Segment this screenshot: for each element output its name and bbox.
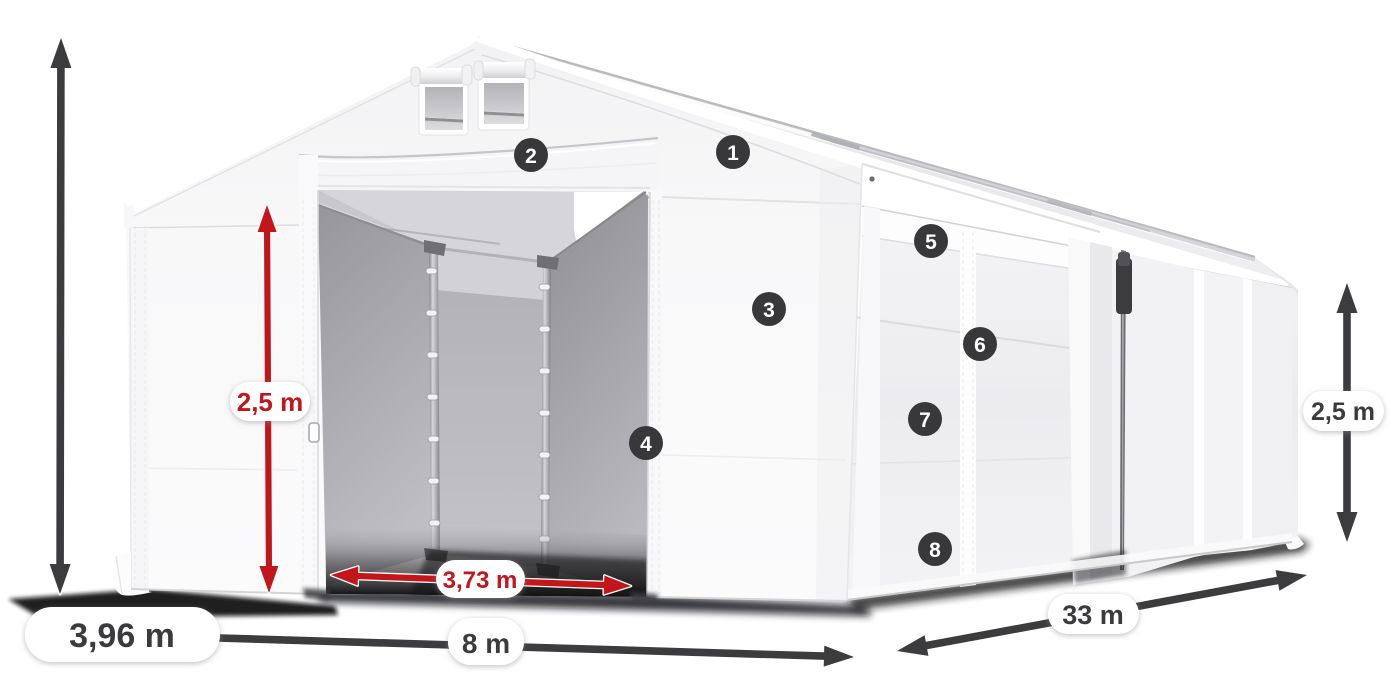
svg-text:3,73 m: 3,73 m	[443, 567, 518, 594]
svg-text:3,96 m: 3,96 m	[69, 617, 175, 655]
svg-text:7: 7	[919, 409, 931, 432]
svg-text:8 m: 8 m	[462, 628, 510, 659]
svg-text:2,5 m: 2,5 m	[1311, 398, 1375, 426]
svg-text:2,5 m: 2,5 m	[237, 387, 304, 417]
svg-text:3: 3	[763, 299, 775, 322]
svg-text:2: 2	[525, 145, 537, 168]
svg-text:4: 4	[640, 433, 652, 456]
svg-text:1: 1	[727, 142, 739, 165]
svg-text:33 m: 33 m	[1062, 600, 1124, 630]
svg-text:8: 8	[929, 539, 941, 562]
svg-text:5: 5	[925, 231, 937, 254]
svg-text:6: 6	[974, 334, 986, 357]
